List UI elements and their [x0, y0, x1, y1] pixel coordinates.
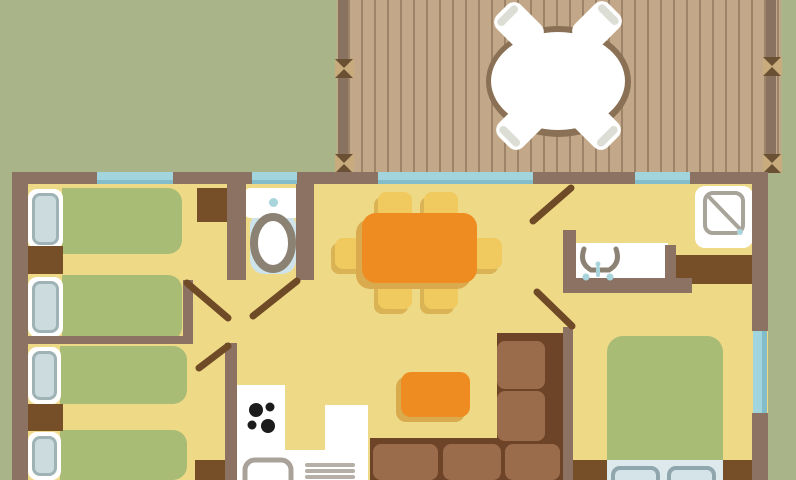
window-double-bedroom [753, 331, 767, 413]
dining-chair [424, 281, 458, 309]
pillow [611, 466, 660, 480]
pillow [28, 277, 63, 337]
pillow [28, 347, 61, 404]
wall-bedroom2-east [225, 343, 237, 480]
window-bedroom1 [97, 172, 173, 184]
wardrobe [195, 460, 225, 480]
wall-wc-left [227, 183, 246, 280]
single-bed-2 [62, 275, 182, 341]
single-bed-1 [62, 188, 182, 254]
nightstand [723, 460, 753, 480]
sofa-cushion [443, 444, 501, 480]
wall-bathroom-step [665, 245, 676, 278]
dining-table [362, 213, 477, 283]
wall-wc-right [296, 183, 314, 280]
dining-chair [335, 238, 363, 269]
window-wc [252, 172, 297, 184]
wall-top [533, 172, 635, 184]
closet [197, 188, 227, 222]
shower-tray [695, 186, 753, 248]
rail-post [763, 154, 782, 173]
window-bathroom [635, 172, 690, 184]
wall-living-bedroom-divider [563, 327, 573, 480]
round-patio-table [491, 32, 625, 130]
rail-post [763, 57, 782, 76]
single-bed-4 [60, 430, 187, 480]
pillow [667, 466, 716, 480]
wall-left [12, 172, 28, 480]
sliding-door-terrace [378, 172, 533, 184]
deck-rail-left [338, 0, 348, 172]
sofa-cushion [497, 391, 545, 441]
pillow-inner [32, 193, 59, 245]
pillow-inner [32, 351, 57, 400]
deck-rail-right [766, 0, 776, 172]
rail-post [335, 59, 354, 78]
coffee-table [401, 372, 470, 417]
wall-bedroom-divider [12, 336, 193, 344]
double-bed [607, 336, 723, 462]
wall-bedroom1-east [183, 280, 193, 343]
wall-right [752, 413, 768, 480]
floor-plan [0, 0, 796, 480]
dining-chair [474, 238, 502, 269]
sofa-cushion [505, 444, 560, 480]
nightstand [571, 460, 607, 480]
nightstand [28, 404, 63, 431]
toilet-bowl-area [250, 212, 296, 274]
toilet-tank [243, 188, 303, 218]
pillow-inner [32, 436, 57, 476]
sofa-cushion [497, 341, 545, 389]
dining-chair [378, 281, 412, 309]
flush-button [269, 198, 278, 207]
pillow [28, 189, 63, 249]
wall-bathroom-bottom [563, 278, 692, 293]
sofa-cushion [373, 444, 438, 480]
wall-right [752, 172, 768, 331]
nightstand [28, 246, 63, 274]
pillow [28, 432, 61, 480]
single-bed-3 [60, 346, 187, 404]
pillow-inner [32, 281, 59, 333]
rail-post [335, 154, 354, 173]
washbasin-counter [576, 243, 668, 278]
kitchen-counter-right [325, 405, 368, 480]
